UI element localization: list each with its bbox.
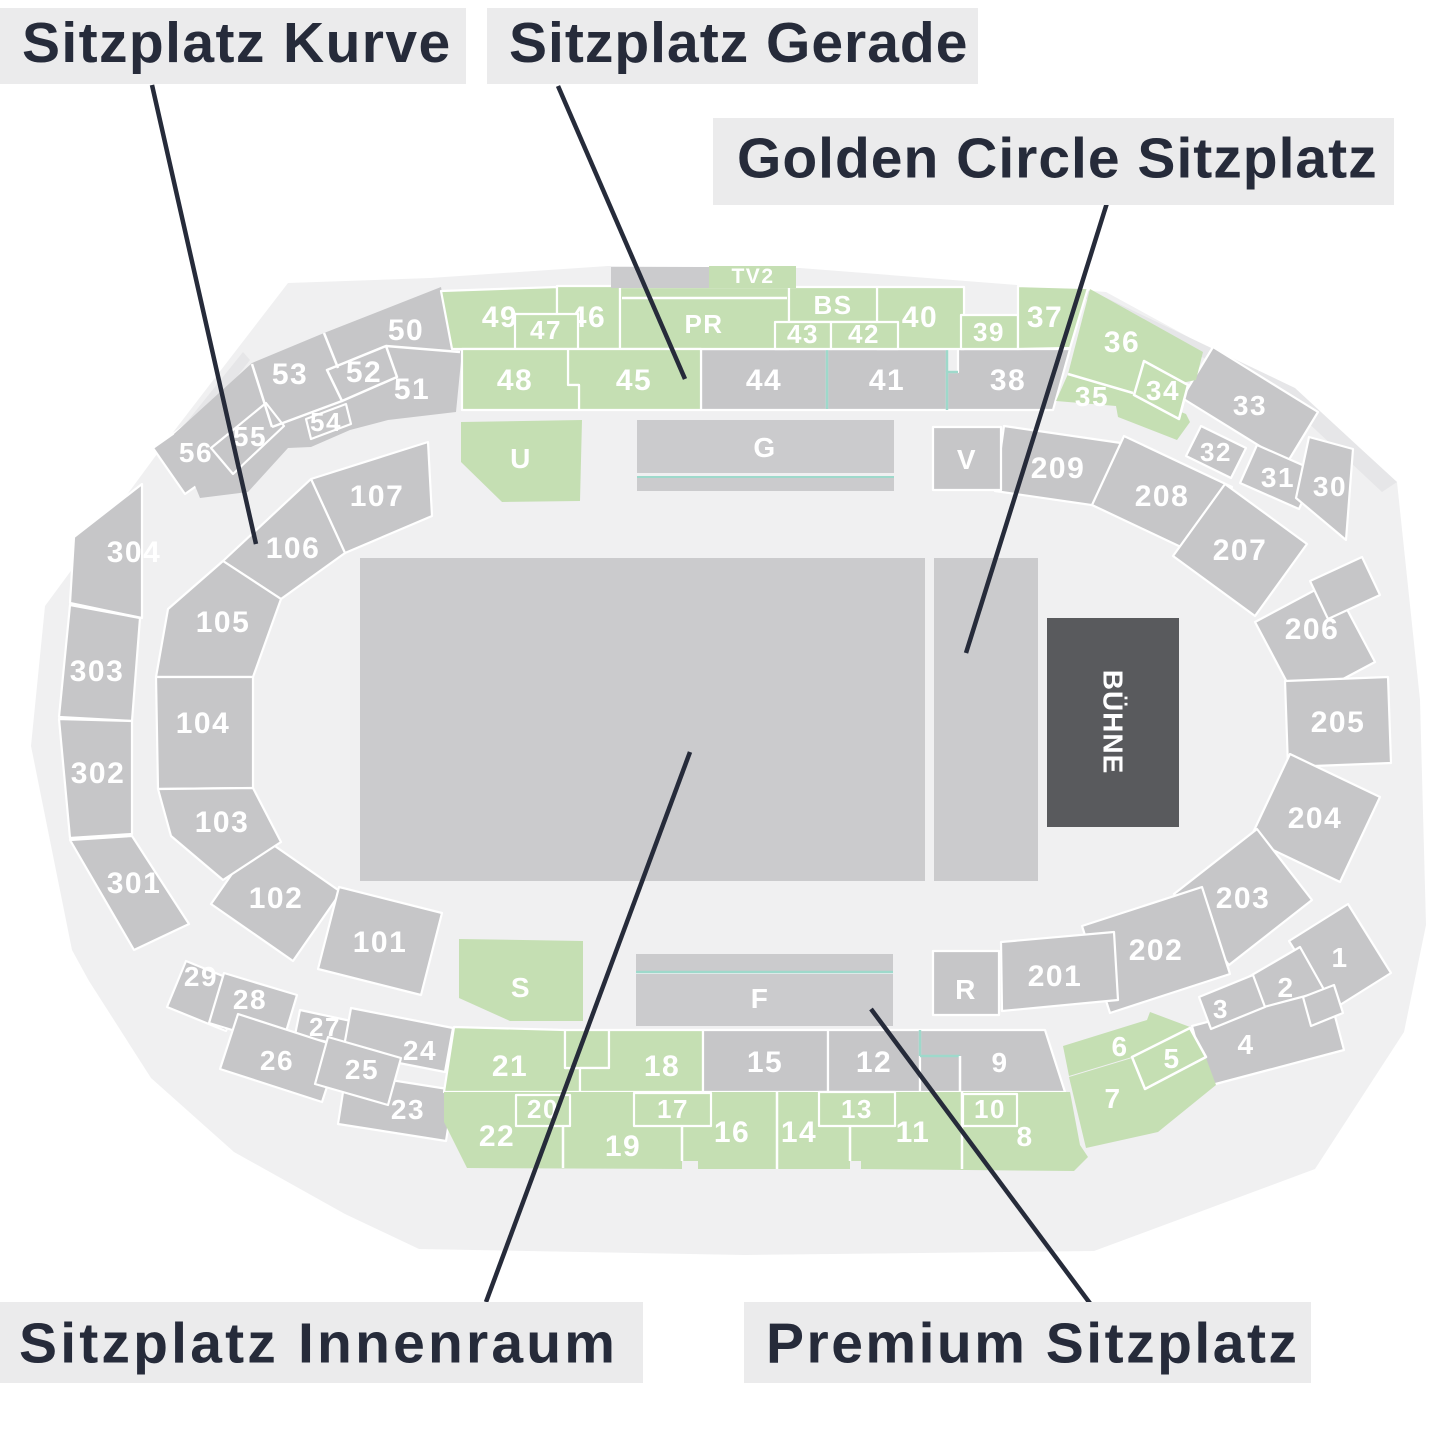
svg-text:206: 206 bbox=[1285, 613, 1340, 646]
svg-text:203: 203 bbox=[1216, 882, 1271, 915]
svg-text:41: 41 bbox=[869, 364, 905, 397]
svg-text:9: 9 bbox=[991, 1047, 1008, 1078]
svg-text:47: 47 bbox=[530, 315, 562, 345]
svg-text:36: 36 bbox=[1104, 326, 1140, 359]
svg-text:30: 30 bbox=[1313, 471, 1347, 502]
svg-text:17: 17 bbox=[657, 1094, 689, 1124]
svg-text:PR: PR bbox=[684, 309, 723, 339]
svg-text:31: 31 bbox=[1261, 462, 1295, 493]
svg-text:55: 55 bbox=[233, 421, 267, 452]
svg-text:26: 26 bbox=[260, 1045, 294, 1076]
svg-text:1: 1 bbox=[1331, 942, 1348, 973]
svg-text:44: 44 bbox=[746, 364, 782, 397]
svg-text:101: 101 bbox=[353, 926, 408, 959]
svg-text:38: 38 bbox=[990, 364, 1026, 397]
svg-text:107: 107 bbox=[350, 480, 405, 513]
svg-text:7: 7 bbox=[1104, 1083, 1121, 1114]
svg-text:37: 37 bbox=[1027, 301, 1063, 334]
svg-text:G: G bbox=[753, 432, 776, 463]
svg-text:16: 16 bbox=[714, 1116, 750, 1149]
svg-text:209: 209 bbox=[1031, 452, 1086, 485]
svg-text:21: 21 bbox=[492, 1050, 528, 1083]
svg-text:33: 33 bbox=[1233, 390, 1267, 421]
svg-text:15: 15 bbox=[747, 1046, 783, 1079]
svg-text:56: 56 bbox=[179, 437, 213, 468]
svg-text:50: 50 bbox=[388, 314, 424, 347]
svg-text:BÜHNE: BÜHNE bbox=[1098, 670, 1129, 775]
svg-text:22: 22 bbox=[479, 1120, 515, 1153]
svg-text:103: 103 bbox=[195, 806, 250, 839]
svg-text:48: 48 bbox=[497, 364, 533, 397]
svg-text:54: 54 bbox=[310, 407, 342, 437]
svg-text:303: 303 bbox=[70, 655, 125, 688]
svg-text:207: 207 bbox=[1213, 534, 1268, 567]
svg-text:32: 32 bbox=[1200, 437, 1232, 467]
svg-text:Premium Sitzplatz: Premium Sitzplatz bbox=[766, 1312, 1299, 1376]
svg-text:201: 201 bbox=[1028, 960, 1083, 993]
svg-text:105: 105 bbox=[196, 606, 251, 639]
svg-text:TV2: TV2 bbox=[731, 265, 774, 288]
svg-text:6: 6 bbox=[1111, 1031, 1128, 1062]
svg-text:102: 102 bbox=[249, 882, 304, 915]
svg-text:42: 42 bbox=[848, 319, 880, 349]
svg-text:45: 45 bbox=[616, 364, 652, 397]
svg-text:39: 39 bbox=[973, 317, 1005, 347]
svg-text:S: S bbox=[511, 972, 531, 1003]
svg-text:29: 29 bbox=[184, 961, 218, 992]
svg-text:12: 12 bbox=[856, 1046, 892, 1079]
svg-text:24: 24 bbox=[403, 1035, 437, 1066]
svg-text:3: 3 bbox=[1213, 994, 1229, 1024]
svg-text:205: 205 bbox=[1311, 706, 1366, 739]
svg-text:Sitzplatz Kurve: Sitzplatz Kurve bbox=[22, 11, 452, 75]
svg-text:204: 204 bbox=[1288, 802, 1343, 835]
svg-text:49: 49 bbox=[482, 301, 518, 334]
svg-text:U: U bbox=[510, 443, 532, 474]
svg-text:51: 51 bbox=[394, 373, 430, 406]
svg-text:V: V bbox=[957, 444, 977, 475]
svg-text:301: 301 bbox=[107, 867, 162, 900]
svg-text:Sitzplatz Innenraum: Sitzplatz Innenraum bbox=[19, 1312, 618, 1376]
svg-text:106: 106 bbox=[266, 532, 321, 565]
svg-text:34: 34 bbox=[1146, 375, 1180, 406]
svg-text:18: 18 bbox=[644, 1050, 680, 1083]
svg-text:304: 304 bbox=[107, 536, 162, 569]
svg-text:202: 202 bbox=[1129, 934, 1184, 967]
svg-text:14: 14 bbox=[781, 1116, 817, 1149]
svg-text:4: 4 bbox=[1237, 1029, 1254, 1060]
svg-text:25: 25 bbox=[345, 1054, 379, 1085]
svg-text:R: R bbox=[955, 974, 977, 1005]
svg-text:11: 11 bbox=[896, 1116, 931, 1149]
svg-text:BS: BS bbox=[813, 290, 852, 320]
svg-text:28: 28 bbox=[233, 984, 267, 1015]
svg-text:208: 208 bbox=[1135, 480, 1190, 513]
svg-text:10: 10 bbox=[974, 1094, 1006, 1124]
svg-text:13: 13 bbox=[841, 1094, 873, 1124]
svg-text:104: 104 bbox=[176, 707, 231, 740]
svg-text:5: 5 bbox=[1163, 1043, 1180, 1074]
svg-text:23: 23 bbox=[391, 1094, 425, 1125]
svg-text:Golden Circle Sitzplatz: Golden Circle Sitzplatz bbox=[737, 127, 1378, 191]
svg-text:Sitzplatz Gerade: Sitzplatz Gerade bbox=[509, 11, 968, 75]
svg-text:53: 53 bbox=[272, 358, 308, 391]
svg-text:F: F bbox=[751, 983, 770, 1014]
svg-text:19: 19 bbox=[605, 1130, 641, 1163]
svg-text:43: 43 bbox=[787, 319, 819, 349]
svg-text:2: 2 bbox=[1277, 972, 1294, 1003]
svg-text:40: 40 bbox=[902, 301, 938, 334]
svg-text:302: 302 bbox=[71, 757, 126, 790]
svg-text:52: 52 bbox=[346, 356, 382, 389]
svg-text:8: 8 bbox=[1016, 1121, 1033, 1152]
